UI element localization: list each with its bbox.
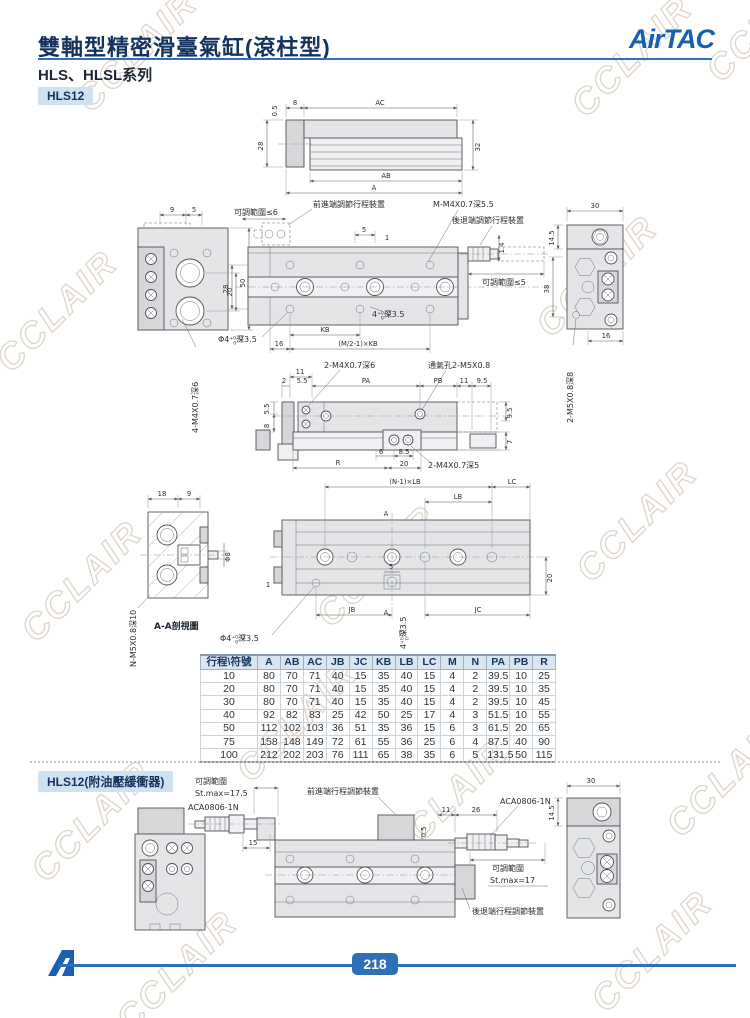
table-cell: 36 xyxy=(395,736,418,749)
table-cell: 2 xyxy=(464,696,487,709)
dim-16: 16 xyxy=(275,340,284,348)
table-cell: 35 xyxy=(372,670,395,683)
table-cell: 51.5 xyxy=(487,709,510,722)
figure-front-view: 2-M4X0.7深6 通氣孔2-M5X0.8 11 2 5.5 PA PB 11… xyxy=(248,356,553,486)
table-cell: 3 xyxy=(464,709,487,722)
column-header: PA xyxy=(487,655,510,670)
dim-8-5: 8.5 xyxy=(399,448,410,456)
table-cell: 6 xyxy=(441,722,464,735)
table-cell: 55 xyxy=(372,736,395,749)
callout-adj6: 可調範圍≤6 xyxy=(234,207,278,217)
column-header: R xyxy=(533,655,556,670)
right-end-view: 30 14.5 38 16 2-M5X0.8深8 xyxy=(543,202,623,423)
dim-r: R xyxy=(336,459,341,467)
main-top-view: 1.4 可調範圍≤5 可調範圍≤6 前進端調節行程裝置 M-M4X0.7深5.5… xyxy=(218,199,550,353)
figure-side-view: 8 AC 0.5 28 32 AB A xyxy=(250,95,540,200)
dim-nlb: (N-1)×LB xyxy=(389,478,421,486)
table-cell: 30 xyxy=(201,696,258,709)
table-cell: 61 xyxy=(349,736,372,749)
table-cell: 70 xyxy=(280,670,303,683)
dim-26: 26 xyxy=(472,806,481,814)
left-end-view: 9 5 20 50 4-M4X0.7深6 xyxy=(138,206,253,433)
dim-1: 1 xyxy=(266,581,270,589)
table-cell: 80 xyxy=(258,670,281,683)
callout-adj-range-left: 可調範圍 xyxy=(195,776,227,786)
watermark-text: CCLAIR xyxy=(0,242,126,381)
table-cell: 6 xyxy=(441,736,464,749)
table-cell: 90 xyxy=(533,736,556,749)
table-cell: 36 xyxy=(326,722,349,735)
dim-05: 0.5 xyxy=(271,106,279,117)
table-cell: 10 xyxy=(510,696,533,709)
table-cell: 50 xyxy=(201,722,258,735)
dim-9: 9 xyxy=(187,490,191,498)
dim-18: 18 xyxy=(158,490,167,498)
dim-7: 7 xyxy=(506,440,514,444)
callout-rear-device: 後退端行程調節裝置 xyxy=(472,906,544,916)
callout-4-tol-rot: 4+0.030深3.5 xyxy=(399,617,411,650)
column-header: AC xyxy=(303,655,326,670)
dim-30: 30 xyxy=(591,202,600,210)
dim-11: 11 xyxy=(442,806,451,814)
dim-pb: PB xyxy=(434,377,443,385)
table-cell: 15 xyxy=(349,696,372,709)
column-header: JC xyxy=(349,655,372,670)
dim-28: 28 xyxy=(257,142,265,151)
right-end-view: 30 14.5 xyxy=(548,777,620,918)
table-cell: 51 xyxy=(349,722,372,735)
dim-phi8: Φ8 xyxy=(224,552,232,562)
table-cell: 2 xyxy=(464,683,487,696)
table-cell: 10 xyxy=(510,670,533,683)
table-cell: 10 xyxy=(201,670,258,683)
table-row: 3080707140153540154239.51045 xyxy=(201,696,556,709)
page-number-badge: 218 xyxy=(352,953,398,975)
model-tag: HLS12 xyxy=(38,87,93,105)
column-header: PB xyxy=(510,655,533,670)
table-cell: 40 xyxy=(395,670,418,683)
dotted-divider xyxy=(30,761,720,763)
dim-mkb: (M/2-1)×KB xyxy=(338,340,378,348)
dim-1: 1 xyxy=(385,234,389,242)
table-cell: 25 xyxy=(418,736,441,749)
table-cell: 36 xyxy=(395,722,418,735)
table-row: 2080707140153540154239.51035 xyxy=(201,683,556,696)
table-cell: 70 xyxy=(280,696,303,709)
callout-m-thread: M-M4X0.7深5.5 xyxy=(433,200,494,209)
watermark-text: CCLAIR xyxy=(658,707,750,846)
dim-jc: JC xyxy=(474,606,482,614)
dim-20: 20 xyxy=(400,460,409,468)
dim-32: 32 xyxy=(474,143,482,152)
table-cell: 112 xyxy=(258,722,281,735)
table-cell: 25 xyxy=(326,709,349,722)
dim-lc: LC xyxy=(508,478,517,486)
table-cell: 15 xyxy=(418,722,441,735)
column-header: KB xyxy=(372,655,395,670)
dim-9-5r: 9.5 xyxy=(506,408,514,419)
callout-stmax-left: St.max=17.5 xyxy=(195,789,248,798)
main-bottom-view: A A (N-1)×LB LC LB 5 1 20 JB JC xyxy=(220,478,554,649)
dim-5: 5 xyxy=(192,206,196,214)
table-cell: 25 xyxy=(395,709,418,722)
table-row: 4092828325425025174351.51055 xyxy=(201,709,556,722)
callout-side-thread: 2-M5X0.8深8 xyxy=(566,372,575,423)
table-cell: 40 xyxy=(326,696,349,709)
dim-20: 20 xyxy=(546,574,554,583)
table-row: 1080707140153540154239.51025 xyxy=(201,670,556,683)
dim-a: A xyxy=(372,184,377,192)
column-header: JB xyxy=(326,655,349,670)
dim-16r: 16 xyxy=(602,332,611,340)
table-cell: 35 xyxy=(372,722,395,735)
section-view: 18 9 Φ8 N-M5X0.8深10 A-A剖視圖 xyxy=(129,490,232,667)
table-cell: 17 xyxy=(418,709,441,722)
dim-50: 50 xyxy=(239,279,247,288)
table-header-row: 行程\符號AABACJBJCKBLBLCMNPAPBR xyxy=(201,655,556,670)
title-underline xyxy=(38,58,712,60)
table-cell: 55 xyxy=(533,709,556,722)
table-cell: 40 xyxy=(326,683,349,696)
column-header: N xyxy=(464,655,487,670)
column-header: AB xyxy=(280,655,303,670)
table-cell: 40 xyxy=(510,736,533,749)
watermark-text: CCLAIR xyxy=(563,0,702,125)
dim-a-bottom: A xyxy=(384,609,389,617)
callout-n-thread: N-M5X0.8深10 xyxy=(129,610,138,667)
table-cell: 45 xyxy=(533,696,556,709)
table-cell: 42 xyxy=(349,709,372,722)
table-cell: 15 xyxy=(418,683,441,696)
table-cell: 103 xyxy=(303,722,326,735)
table-cell: 39.5 xyxy=(487,696,510,709)
callout-front-device: 前進端調節行程裝置 xyxy=(313,199,385,209)
dim-8: 8 xyxy=(293,99,297,107)
callout-buffer-left: ACA0806-1N xyxy=(188,803,239,812)
table-row: 7515814814972615536256487.54090 xyxy=(201,736,556,749)
dim-5-top: 5 xyxy=(362,226,366,234)
table-cell: 71 xyxy=(303,683,326,696)
table-cell: 35 xyxy=(372,683,395,696)
callout-buffer-right: ACA0806-1N xyxy=(500,797,551,806)
dim-2: 2 xyxy=(282,377,286,385)
table-cell: 80 xyxy=(258,696,281,709)
dim-pa: PA xyxy=(362,377,371,385)
table-cell: 20 xyxy=(201,683,258,696)
table-cell: 4 xyxy=(441,670,464,683)
dim-30: 30 xyxy=(587,777,596,785)
callout-top-thread: 2-M4X0.7深6 xyxy=(324,361,375,370)
table-cell: 40 xyxy=(395,683,418,696)
table-cell: 87.5 xyxy=(487,736,510,749)
table-cell: 70 xyxy=(280,683,303,696)
callout-stmax-right: St.max=17 xyxy=(490,876,535,885)
dim-lb: LB xyxy=(454,493,463,501)
table-cell: 149 xyxy=(303,736,326,749)
table-cell: 4 xyxy=(441,709,464,722)
table-cell: 80 xyxy=(258,683,281,696)
table-cell: 50 xyxy=(372,709,395,722)
table-cell: 65 xyxy=(533,722,556,735)
table-cell: 10 xyxy=(510,683,533,696)
dim-a-top: A xyxy=(384,510,389,518)
callout-corner-thread: 4-M4X0.7深6 xyxy=(191,382,200,433)
table-cell: 15 xyxy=(418,696,441,709)
section-view-label: A-A剖視圖 xyxy=(154,620,199,632)
dim-5: 5 xyxy=(389,563,393,571)
dim-11: 11 xyxy=(296,368,305,376)
table-cell: 39.5 xyxy=(487,683,510,696)
table-cell: 82 xyxy=(280,709,303,722)
table-cell: 3 xyxy=(464,722,487,735)
figure-buffer-view: 可調範圍 St.max=17.5 ACA0806-1N 15 前進端行程調節裝置… xyxy=(120,772,665,942)
table-cell: 40 xyxy=(326,670,349,683)
callout-phi4-tol: Φ4+0.030深3.5 xyxy=(218,335,257,347)
callout-adj-range-right: 可調範圍 xyxy=(492,863,524,873)
table-cell: 83 xyxy=(303,709,326,722)
table-cell: 25 xyxy=(533,670,556,683)
table-cell: 4 xyxy=(441,696,464,709)
table-cell: 71 xyxy=(303,670,326,683)
dimension-table: 行程\符號AABACJBJCKBLBLCMNPAPBR 108070714015… xyxy=(200,654,556,763)
dim-8: 8 xyxy=(263,424,271,428)
dim-9-5t: 9.5 xyxy=(477,377,488,385)
table-cell: 92 xyxy=(258,709,281,722)
airtac-logo: AirTAC xyxy=(629,24,714,55)
table-row: 5011210210336513536156361.52065 xyxy=(201,722,556,735)
dim-6: 6 xyxy=(379,448,383,456)
table-cell: 40 xyxy=(201,709,258,722)
table-cell: 158 xyxy=(258,736,281,749)
main-view: 可調範圍 St.max=17.5 ACA0806-1N 15 前進端行程調節裝置… xyxy=(188,776,551,917)
table-cell: 71 xyxy=(303,696,326,709)
left-end-view xyxy=(135,808,205,930)
dim-ac: AC xyxy=(375,99,385,107)
column-header: LB xyxy=(395,655,418,670)
dim-1-4: 1.4 xyxy=(498,243,506,254)
table-cell: 148 xyxy=(280,736,303,749)
table-cell: 40 xyxy=(395,696,418,709)
dim-14-5: 14.5 xyxy=(548,230,556,245)
dim-kb: KB xyxy=(320,326,329,334)
footer-logo xyxy=(45,946,81,980)
callout-vent-port: 通氣孔2-M5X0.8 xyxy=(428,360,490,370)
dim-jb: JB xyxy=(348,606,356,614)
table-cell: 102 xyxy=(280,722,303,735)
dim-5-5: 5.5 xyxy=(297,377,308,385)
dim-5-5l: 5.5 xyxy=(263,404,271,415)
column-header: LC xyxy=(418,655,441,670)
callout-phi4-tol: Φ4+0.030深3.5 xyxy=(220,634,259,646)
dim-28: 28 xyxy=(222,285,230,294)
table-cell: 39.5 xyxy=(487,670,510,683)
column-header: 行程\符號 xyxy=(201,655,258,670)
dim-ab: AB xyxy=(381,172,391,180)
column-header: M xyxy=(441,655,464,670)
table-cell: 4 xyxy=(464,736,487,749)
page: CCLAIR CCLAIR CCLAIR CCLAIR CCLAIR CCLAI… xyxy=(0,0,750,1018)
table-cell: 20 xyxy=(510,722,533,735)
callout-front-device: 前進端行程調節裝置 xyxy=(307,786,379,796)
dim-0-5: 0.5 xyxy=(420,827,428,838)
dim-38: 38 xyxy=(543,285,551,294)
table-cell: 2 xyxy=(464,670,487,683)
table-cell: 72 xyxy=(326,736,349,749)
table-cell: 35 xyxy=(533,683,556,696)
dim-14-5: 14.5 xyxy=(548,805,556,820)
callout-rear-device: 後退端調節行程裝置 xyxy=(452,215,524,225)
table-cell: 4 xyxy=(441,683,464,696)
series-subtitle: HLS、HLSL系列 xyxy=(38,64,152,85)
dim-11r: 11 xyxy=(460,377,469,385)
table-cell: 10 xyxy=(510,709,533,722)
callout-adj5: 可調範圍≤5 xyxy=(482,277,526,287)
table-cell: 15 xyxy=(349,683,372,696)
dim-9: 9 xyxy=(170,206,174,214)
table-cell: 35 xyxy=(372,696,395,709)
dim-15: 15 xyxy=(249,839,258,847)
table-cell: 15 xyxy=(418,670,441,683)
callout-bottom-thread: 2-M4X0.7深5 xyxy=(428,461,479,470)
figure-bottom-view: 18 9 Φ8 N-M5X0.8深10 A-A剖視圖 A xyxy=(120,475,595,670)
table-cell: 61.5 xyxy=(487,722,510,735)
column-header: A xyxy=(258,655,281,670)
table-cell: 75 xyxy=(201,736,258,749)
table-cell: 15 xyxy=(349,670,372,683)
